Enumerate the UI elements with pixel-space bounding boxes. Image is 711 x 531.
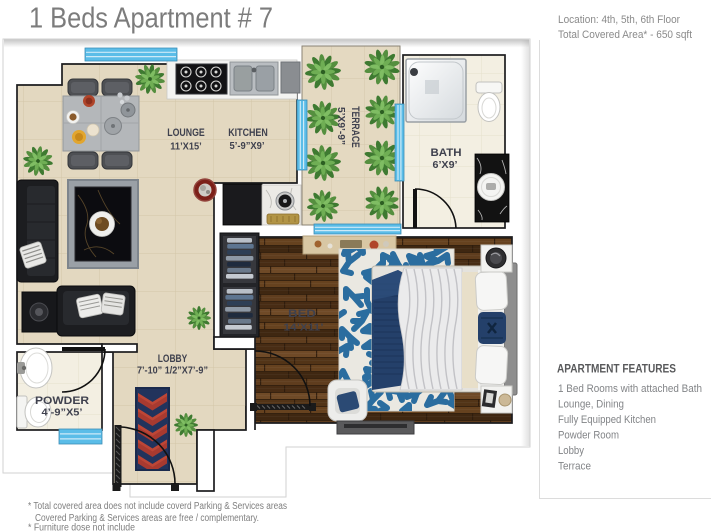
svg-text:* Total covered area does not: * Total covered area does not include co… (28, 501, 287, 512)
svg-text:Lounge, Dining: Lounge, Dining (558, 399, 624, 411)
svg-text:BATH: BATH (431, 147, 462, 159)
svg-text:Fully Equipped Kitchen: Fully Equipped Kitchen (558, 414, 656, 426)
svg-text:11’X15’: 11’X15’ (170, 142, 202, 153)
svg-text:5’-9”X9’: 5’-9”X9’ (230, 141, 265, 152)
svg-text:1 Beds Apartment # 7: 1 Beds Apartment # 7 (29, 3, 273, 35)
svg-text:7’-10” 1/2”X7’-9”: 7’-10” 1/2”X7’-9” (137, 366, 208, 377)
svg-text:BED: BED (288, 308, 316, 320)
svg-text:4’-9”X5’: 4’-9”X5’ (42, 408, 83, 419)
svg-text:KITCHEN: KITCHEN (228, 127, 268, 139)
svg-text:Location: 4th, 5th, 6th Floor: Location: 4th, 5th, 6th Floor (558, 14, 680, 26)
svg-text:APARTMENT FEATURES: APARTMENT FEATURES (557, 362, 676, 376)
svg-text:TERRACE: TERRACE (349, 106, 361, 148)
svg-text:5’X9’-9”: 5’X9’-9” (335, 107, 346, 145)
svg-text:14’X11’: 14’X11’ (284, 323, 324, 334)
svg-text:Total Covered Area* - 650 sqft: Total Covered Area* - 650 sqft (558, 29, 692, 41)
svg-text:Lobby: Lobby (558, 445, 584, 457)
svg-text:LOBBY: LOBBY (158, 353, 188, 365)
svg-text:1 Bed Rooms with attached Bath: 1 Bed Rooms with attached Bath (558, 383, 702, 395)
svg-text:POWDER: POWDER (35, 395, 89, 407)
svg-text:Terrace: Terrace (558, 461, 591, 473)
svg-text:Powder Room: Powder Room (558, 430, 619, 442)
svg-text:LOUNGE: LOUNGE (167, 127, 205, 139)
svg-text:* Furniture dose not include: * Furniture dose not include (28, 523, 135, 531)
svg-text:6’X9’: 6’X9’ (433, 160, 458, 171)
